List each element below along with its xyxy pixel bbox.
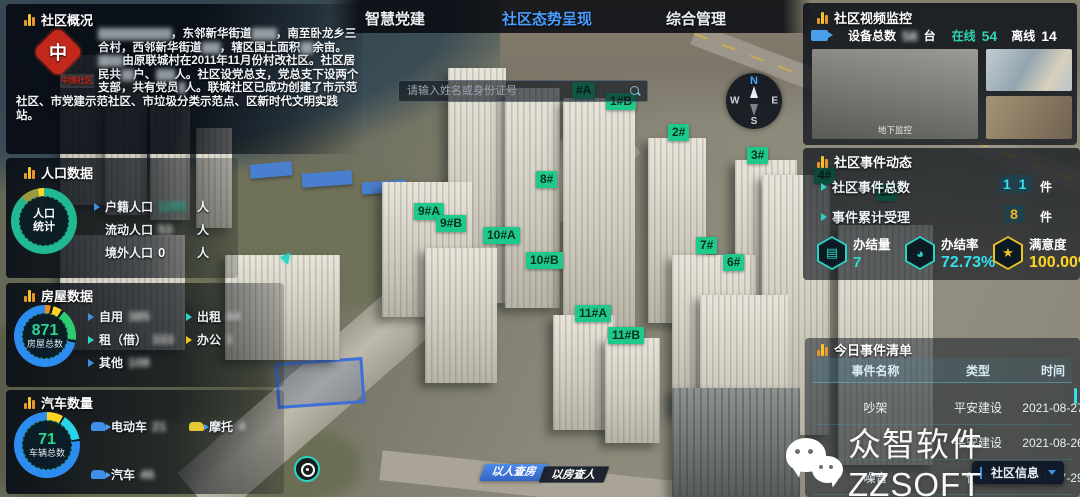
ev-car-icon bbox=[91, 422, 106, 431]
clipboard-icon: ▤ bbox=[817, 236, 847, 270]
map-blue-compound bbox=[275, 357, 366, 409]
building-label-11B[interactable]: 11#B bbox=[608, 327, 644, 344]
person-search-box bbox=[398, 80, 648, 102]
building-label-9B[interactable]: 9#B bbox=[436, 215, 466, 232]
events-panel-title: 社区事件动态 bbox=[834, 152, 912, 171]
population-row: 户籍人口 1285 人 bbox=[94, 198, 209, 215]
compass-needle-icon bbox=[750, 104, 758, 116]
device-unit: 台 bbox=[924, 27, 936, 44]
event-list-title: 今日事件清单 bbox=[834, 340, 912, 359]
column-header-name: 事件名称 bbox=[813, 362, 938, 379]
building-label-3[interactable]: 3# bbox=[747, 147, 768, 164]
event-list-header: 事件名称 类型 时间 bbox=[813, 358, 1072, 383]
housing-panel: 房屋数据 871 房屋总数 自用 385 租（借） 333 其他 108 出租 … bbox=[6, 283, 284, 387]
event-row[interactable]: 吵架 平安建设 2021-08-27 bbox=[813, 391, 1072, 425]
events-accepted-value: 8 bbox=[1004, 205, 1024, 223]
population-row: 境外人口 0 人 bbox=[105, 244, 209, 261]
triangle-bullet-icon bbox=[88, 336, 94, 344]
stat-satisfaction: ★ 满意度100.00% bbox=[993, 236, 1080, 272]
online-value: 54 bbox=[982, 28, 998, 44]
tab-smart-party-building[interactable]: 智慧党建 bbox=[365, 8, 425, 29]
car-icon bbox=[91, 470, 106, 479]
smart-community-dashboard: #A 1#B 2# 3# 8# 9#A 9#B 10#A 10#B 7# 6# … bbox=[0, 0, 1080, 497]
community-events-panel: 社区事件动态 社区事件总数 1 1 件 事件累计受理 8 件 ▤ 办结量7 ◕ … bbox=[803, 148, 1080, 280]
vehicle-row: 汽车 46 bbox=[91, 466, 154, 483]
logo-caption: 中国社区 bbox=[60, 74, 94, 88]
video-panel-title: 社区视频监控 bbox=[834, 8, 912, 27]
map-building bbox=[425, 248, 497, 383]
triangle-bullet-icon bbox=[88, 359, 94, 367]
building-label-10B[interactable]: 10#B bbox=[526, 252, 563, 269]
housing-row: 办公 1 bbox=[186, 331, 233, 348]
locate-target-button[interactable] bbox=[294, 456, 320, 482]
building-label-8[interactable]: 8# bbox=[536, 171, 557, 188]
housing-row: 其他 108 bbox=[88, 354, 150, 371]
top-tab-bar: 智慧党建 社区态势呈现 综合管理 bbox=[330, 0, 812, 33]
building-label-11A[interactable]: 11#A bbox=[575, 305, 611, 322]
search-icon[interactable] bbox=[629, 85, 641, 97]
star-icon: ★ bbox=[993, 236, 1023, 270]
bar-chart-icon bbox=[817, 156, 828, 168]
community-overview-panel: 社区概况 中 中国社区 ████████████，东邻新华街道████，南至卧龙… bbox=[6, 4, 362, 154]
vehicles-donut-chart: 71 车辆总数 bbox=[14, 412, 80, 478]
bar-chart-icon bbox=[24, 14, 35, 26]
building-label-6[interactable]: 6# bbox=[723, 254, 744, 271]
stat-completed: ▤ 办结量7 bbox=[817, 236, 891, 272]
building-label-10A[interactable]: 10#A bbox=[483, 227, 520, 244]
column-header-time: 时间 bbox=[1018, 362, 1080, 379]
tab-comprehensive-management[interactable]: 综合管理 bbox=[666, 8, 726, 29]
housing-panel-title: 房屋数据 bbox=[41, 286, 93, 305]
events-accepted-unit: 件 bbox=[1040, 208, 1052, 225]
device-total-value: 58 bbox=[902, 28, 918, 44]
compass[interactable]: N W E S bbox=[726, 73, 782, 129]
triangle-bullet-icon bbox=[186, 336, 192, 344]
bar-chart-icon bbox=[24, 167, 35, 179]
triangle-bullet-icon bbox=[186, 313, 192, 321]
compass-needle-icon bbox=[750, 86, 758, 98]
device-total-label: 设备总数 bbox=[848, 27, 896, 44]
housing-donut-chart: 871 房屋总数 bbox=[14, 305, 76, 367]
camera-feed-garage[interactable]: 地下监控 bbox=[812, 49, 978, 139]
events-total-row: 社区事件总数 bbox=[821, 177, 910, 196]
vehicle-row: 电动车 21 bbox=[91, 418, 166, 435]
motorcycle-icon bbox=[189, 422, 204, 431]
tab-community-situation[interactable]: 社区态势呈现 bbox=[502, 8, 592, 29]
triangle-bullet-icon bbox=[821, 213, 827, 221]
compass-east-label: E bbox=[771, 96, 778, 107]
camera-feed-caption: 地下监控 bbox=[878, 124, 912, 136]
triangle-bullet-icon bbox=[94, 203, 100, 211]
map-building-podium bbox=[672, 388, 800, 497]
scrollbar[interactable] bbox=[1074, 388, 1077, 404]
event-row[interactable]: 平安建设 2021-08-26 bbox=[813, 426, 1072, 460]
housing-row: 租（借） 333 bbox=[88, 331, 174, 348]
triangle-bullet-icon bbox=[88, 313, 94, 321]
bar-chart-icon bbox=[24, 290, 35, 302]
offline-label: 离线 bbox=[1011, 27, 1035, 44]
compass-west-label: W bbox=[730, 96, 739, 107]
building-label-7[interactable]: 7# bbox=[696, 237, 717, 254]
accent-bar bbox=[980, 467, 982, 479]
stat-completion-rate: ◕ 办结率72.73% bbox=[905, 236, 995, 272]
map-building bbox=[563, 98, 635, 333]
column-header-type: 类型 bbox=[938, 362, 1018, 379]
vehicle-row: 摩托 4 bbox=[189, 418, 245, 435]
camera-icon bbox=[811, 30, 828, 41]
video-surveillance-panel: 社区视频监控 设备总数 58 台 在线 54 离线 14 地下监控 bbox=[803, 3, 1077, 145]
map-building bbox=[505, 88, 560, 308]
china-community-logo: 中 中国社区 bbox=[28, 30, 90, 90]
bar-chart-icon bbox=[817, 344, 828, 356]
triangle-bullet-icon bbox=[821, 183, 827, 191]
population-panel: 人口数据 人口 统计 户籍人口 1285 人 流动人口 53 人 境外人口 0 … bbox=[6, 158, 238, 278]
online-label: 在线 bbox=[952, 27, 976, 44]
camera-feed-building[interactable] bbox=[986, 49, 1072, 91]
compass-south-label: S bbox=[751, 116, 758, 127]
vehicles-panel-title: 汽车数量 bbox=[41, 393, 93, 412]
overview-text: 中 中国社区 ████████████，东邻新华街道████，南至卧龙乡三合村，… bbox=[16, 28, 360, 123]
search-input[interactable] bbox=[405, 84, 629, 98]
map-building bbox=[605, 338, 660, 443]
vehicles-panel: 汽车数量 71 车辆总数 电动车 21 摩托 4 汽车 46 bbox=[6, 390, 284, 494]
camera-feed-street[interactable] bbox=[986, 96, 1072, 139]
search-person-by-house-button[interactable]: 以房查人 bbox=[538, 466, 610, 483]
overview-panel-title: 社区概况 bbox=[41, 10, 93, 29]
population-row: 流动人口 53 人 bbox=[105, 221, 209, 238]
offline-value: 14 bbox=[1041, 28, 1057, 44]
events-accepted-row: 事件累计受理 bbox=[821, 207, 910, 226]
population-panel-title: 人口数据 bbox=[41, 163, 93, 182]
chevron-down-icon bbox=[1048, 470, 1056, 475]
bar-chart-icon bbox=[24, 397, 35, 409]
housing-row: 出租 44 bbox=[186, 308, 240, 325]
events-total-value: 1 1 bbox=[999, 175, 1032, 193]
population-donut-chart: 人口 统计 bbox=[11, 188, 77, 254]
building-label-2[interactable]: 2# bbox=[668, 124, 689, 141]
events-total-unit: 件 bbox=[1040, 178, 1052, 195]
community-info-dropdown[interactable]: 社区信息 bbox=[972, 461, 1064, 484]
pie-chart-icon: ◕ bbox=[905, 236, 935, 270]
bar-chart-icon bbox=[817, 12, 828, 24]
housing-row: 自用 385 bbox=[88, 308, 150, 325]
